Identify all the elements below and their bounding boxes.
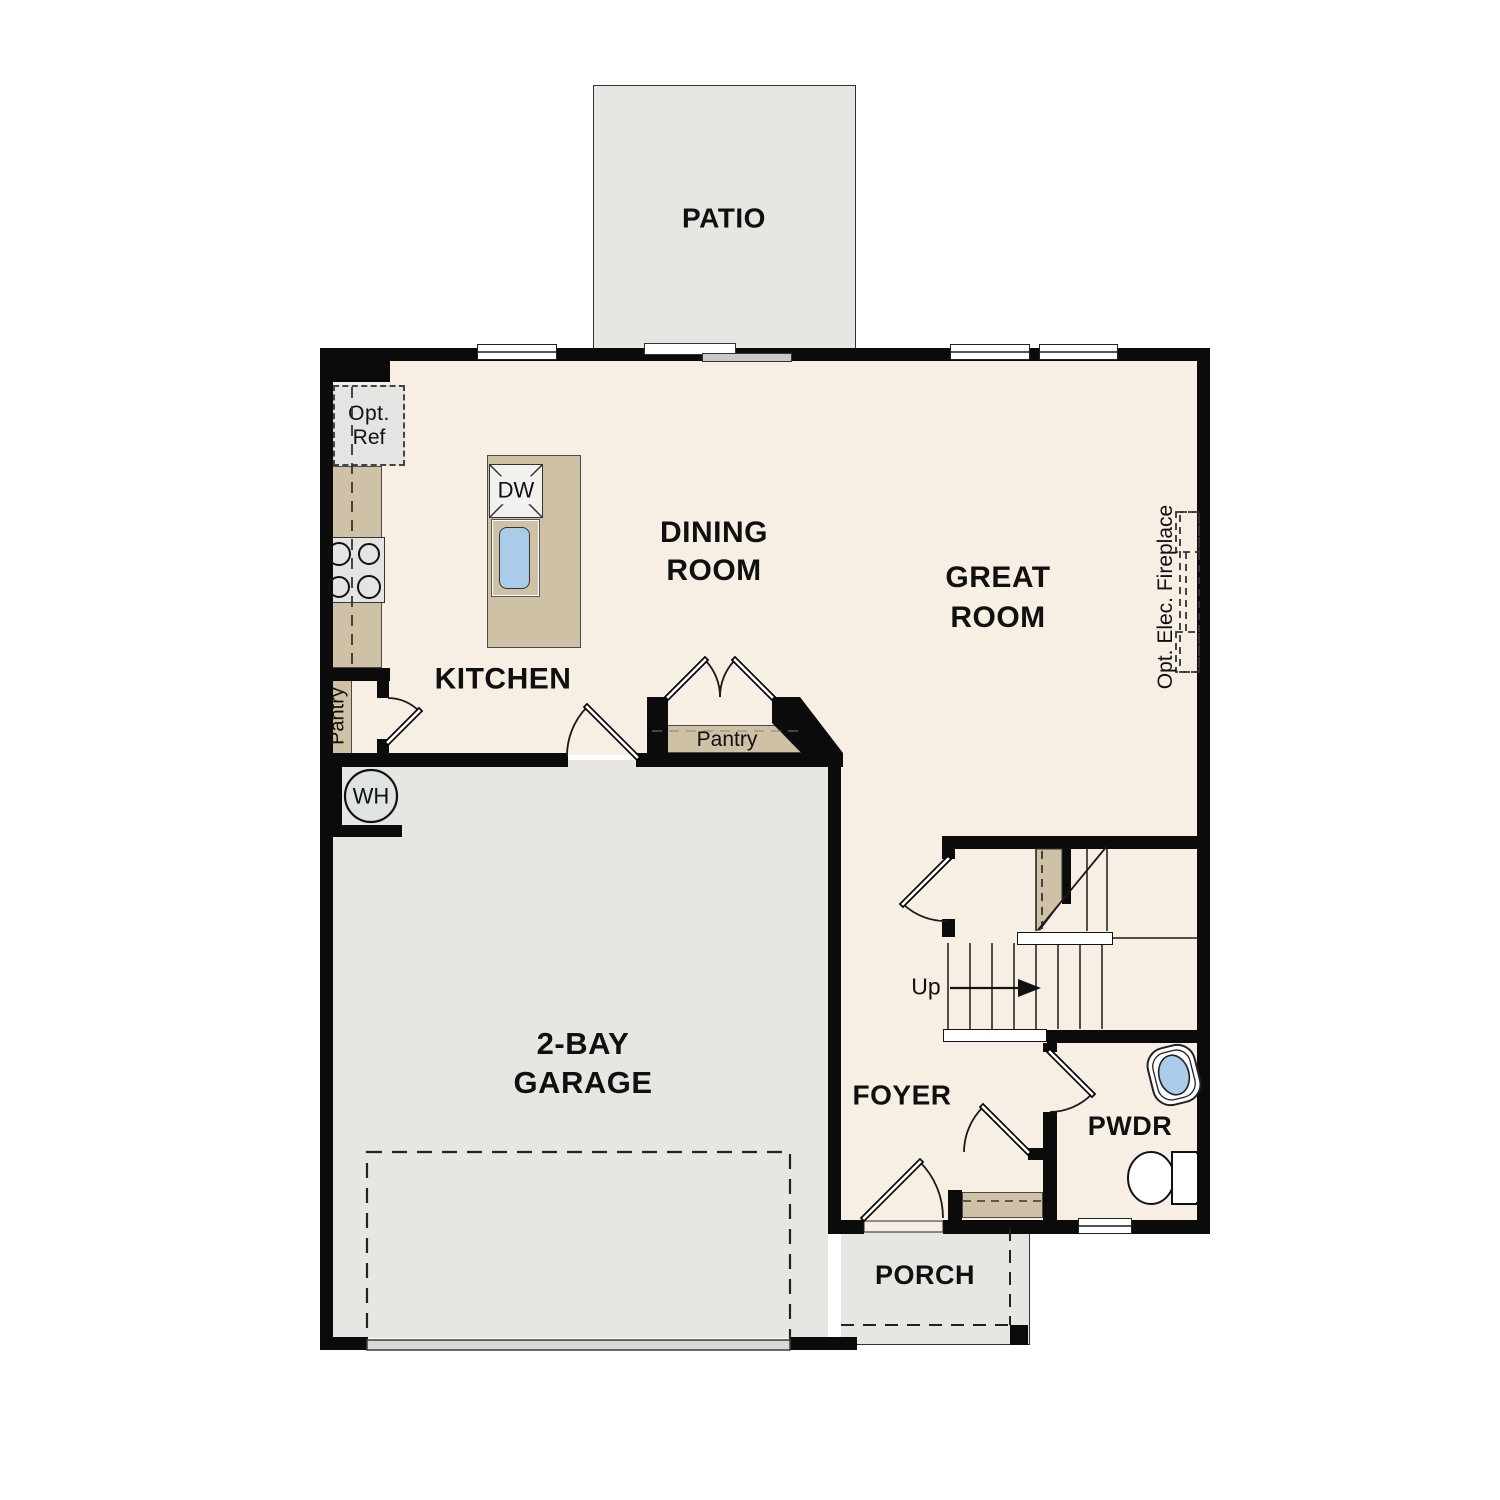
stairs-up-label: Up bbox=[911, 973, 940, 1002]
wall-midpantry-left-stub bbox=[647, 697, 668, 753]
great-line1: GREAT bbox=[945, 558, 1050, 598]
slider-door-panel-2 bbox=[702, 353, 792, 362]
water-heater-label: WH bbox=[353, 782, 390, 810]
garage-line1: 2-BAY bbox=[513, 1024, 652, 1063]
window-pwdr bbox=[1078, 1218, 1132, 1234]
foyer-label: FOYER bbox=[853, 1078, 952, 1113]
pantry-left-label: Pantry bbox=[326, 687, 351, 745]
wall-stair-stub-bottom bbox=[942, 919, 955, 937]
wall-kitchen-bottom-left bbox=[320, 753, 568, 767]
stair-handrail-upper bbox=[1017, 932, 1113, 945]
dining-room-label: DINING ROOM bbox=[660, 514, 768, 590]
wall-pantry-top bbox=[320, 668, 390, 681]
wall-stair-upper-stub bbox=[1062, 849, 1071, 904]
wall-closet-left-stub bbox=[948, 1190, 962, 1220]
wall-corner-block bbox=[320, 348, 390, 382]
wall-front-left bbox=[828, 1220, 864, 1234]
island-sink-basin bbox=[499, 527, 530, 589]
wall-stair-top bbox=[942, 836, 1210, 849]
wall-stair-stub-top bbox=[942, 849, 955, 859]
wall-pwdr-stub-top bbox=[1043, 1043, 1057, 1052]
patio-label: PATIO bbox=[682, 201, 766, 236]
window-great-1 bbox=[950, 344, 1030, 360]
pantry-center-label: Pantry bbox=[697, 727, 758, 753]
window-kitchen bbox=[477, 344, 557, 360]
garage-label: 2-BAY GARAGE bbox=[513, 1024, 652, 1102]
main-floor-right bbox=[841, 755, 1197, 1220]
coat-closet-shelf bbox=[962, 1192, 1043, 1218]
dining-line1: DINING bbox=[660, 514, 768, 552]
opt-ref-label-line1: Opt. bbox=[348, 402, 390, 426]
dining-line2: ROOM bbox=[660, 552, 768, 590]
wall-pantry-stub-top bbox=[377, 681, 389, 698]
wall-garage-bottom-left bbox=[320, 1337, 368, 1350]
wall-front-pwdr-a bbox=[1043, 1220, 1078, 1234]
wall-front-mid bbox=[943, 1220, 1043, 1234]
opt-ref-label-line2: Ref bbox=[353, 426, 386, 450]
wall-front-pwdr-b bbox=[1132, 1220, 1210, 1234]
wall-stair-bottom bbox=[1047, 1030, 1210, 1043]
wall-pwdr-left-lower bbox=[1043, 1112, 1057, 1234]
porch-post bbox=[1010, 1325, 1028, 1345]
pwdr-label: PWDR bbox=[1088, 1110, 1173, 1144]
great-line2: ROOM bbox=[945, 598, 1050, 638]
stair-handrail-lower bbox=[943, 1029, 1047, 1042]
wall-closet-top-bar bbox=[1028, 1148, 1057, 1160]
fireplace-label: Opt. Elec. Fireplace bbox=[1153, 505, 1179, 689]
garage-door-bar bbox=[367, 1340, 790, 1350]
great-room-label: GREAT ROOM bbox=[945, 558, 1050, 638]
floor-plan: Opt. Ref bbox=[0, 0, 1500, 1500]
kitchen-label: KITCHEN bbox=[435, 660, 572, 698]
optional-refrigerator: Opt. Ref bbox=[333, 385, 405, 466]
dishwasher-label: DW bbox=[496, 476, 537, 504]
window-great-2 bbox=[1039, 344, 1118, 360]
wall-garage-left bbox=[320, 767, 333, 1350]
wall-wh-bar bbox=[320, 825, 402, 837]
wall-right bbox=[1197, 348, 1210, 1234]
porch-label: PORCH bbox=[875, 1259, 975, 1293]
garage-line2: GARAGE bbox=[513, 1063, 652, 1102]
wall-garage-bottom-right bbox=[789, 1337, 857, 1350]
wall-wh-block bbox=[320, 767, 342, 825]
wall-kitchen-bottom-right bbox=[636, 753, 843, 767]
stove bbox=[325, 537, 385, 603]
wall-garage-right bbox=[828, 753, 841, 1234]
